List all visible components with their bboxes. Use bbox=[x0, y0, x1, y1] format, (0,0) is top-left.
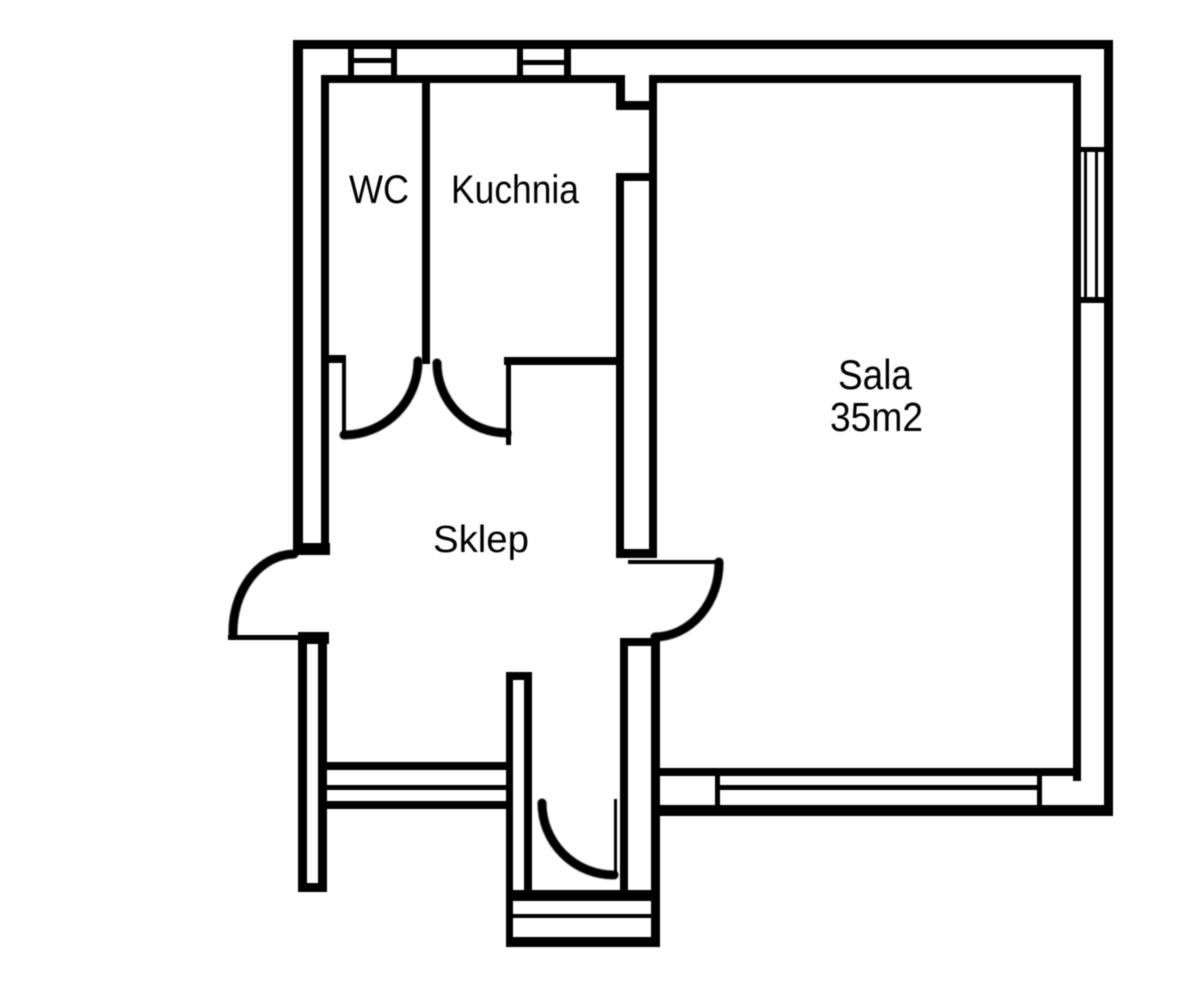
svg-text:Kuchnia: Kuchnia bbox=[451, 168, 580, 212]
svg-text:WC: WC bbox=[349, 168, 409, 212]
svg-text:35m2: 35m2 bbox=[830, 394, 923, 440]
svg-text:Sklep: Sklep bbox=[433, 519, 529, 561]
svg-text:Sala: Sala bbox=[838, 351, 913, 398]
